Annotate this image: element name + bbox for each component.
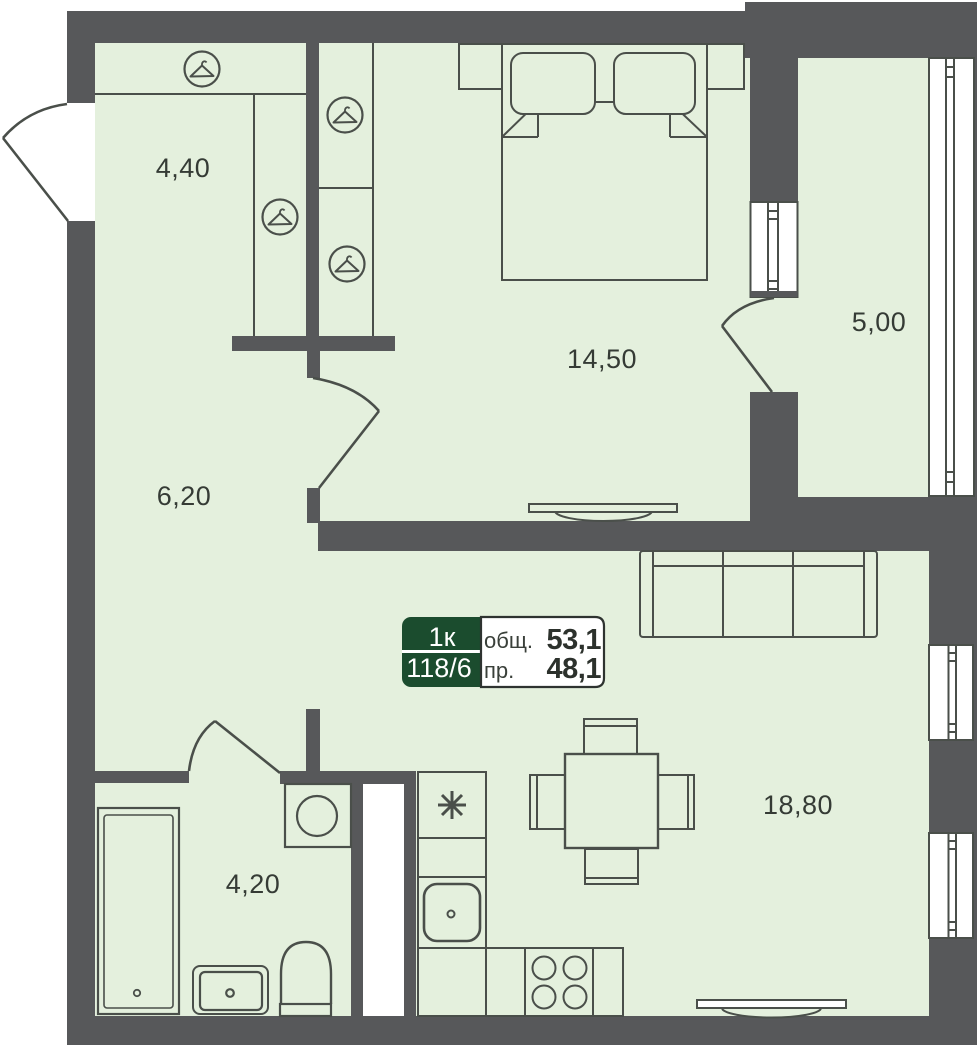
svg-text:4,40: 4,40 [156, 153, 211, 183]
svg-text:4,20: 4,20 [226, 869, 281, 899]
svg-text:пр.: пр. [484, 658, 514, 683]
svg-text:118/6: 118/6 [406, 653, 472, 683]
svg-text:1к: 1к [429, 622, 456, 652]
svg-text:18,80: 18,80 [763, 790, 833, 820]
svg-text:5,00: 5,00 [852, 307, 907, 337]
svg-text:6,20: 6,20 [157, 481, 212, 511]
svg-text:53,1: 53,1 [547, 624, 602, 656]
svg-text:общ.: общ. [484, 628, 533, 653]
svg-text:14,50: 14,50 [567, 344, 637, 374]
svg-text:48,1: 48,1 [547, 653, 602, 685]
